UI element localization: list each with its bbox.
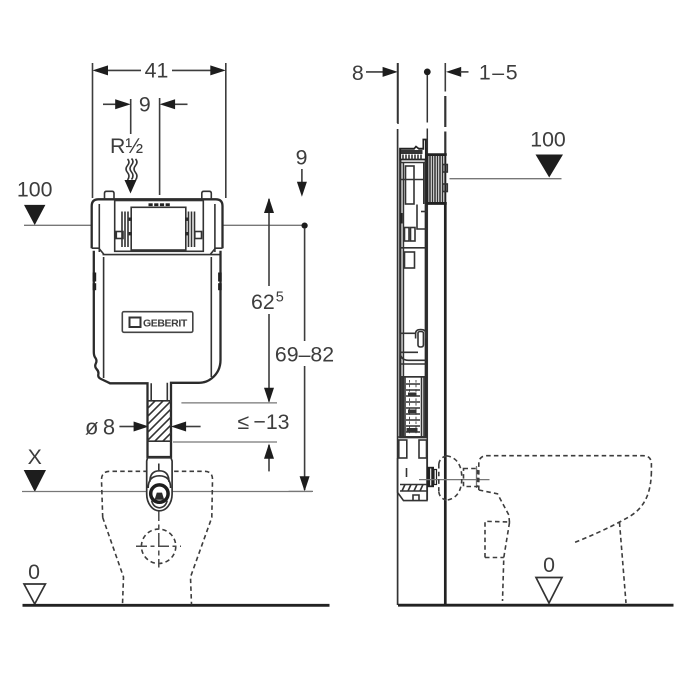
- svg-text:GEBERIT: GEBERIT: [143, 318, 188, 330]
- svg-text:1–5: 1–5: [479, 61, 519, 85]
- svg-text:0: 0: [28, 560, 40, 584]
- svg-text:X: X: [28, 445, 42, 469]
- svg-text:9: 9: [296, 146, 308, 170]
- svg-text:R½: R½: [110, 134, 143, 158]
- svg-text:5: 5: [276, 290, 284, 306]
- svg-text:41: 41: [145, 59, 169, 83]
- svg-text:100: 100: [17, 178, 53, 202]
- svg-text:62: 62: [251, 290, 275, 314]
- svg-text:ø 8: ø 8: [85, 415, 115, 440]
- svg-text:≤ −13: ≤ −13: [237, 410, 289, 434]
- svg-text:8: 8: [352, 61, 364, 85]
- svg-text:9: 9: [139, 93, 151, 117]
- svg-text:69–82: 69–82: [275, 343, 334, 367]
- svg-text:100: 100: [530, 128, 566, 152]
- svg-text:0: 0: [543, 553, 555, 577]
